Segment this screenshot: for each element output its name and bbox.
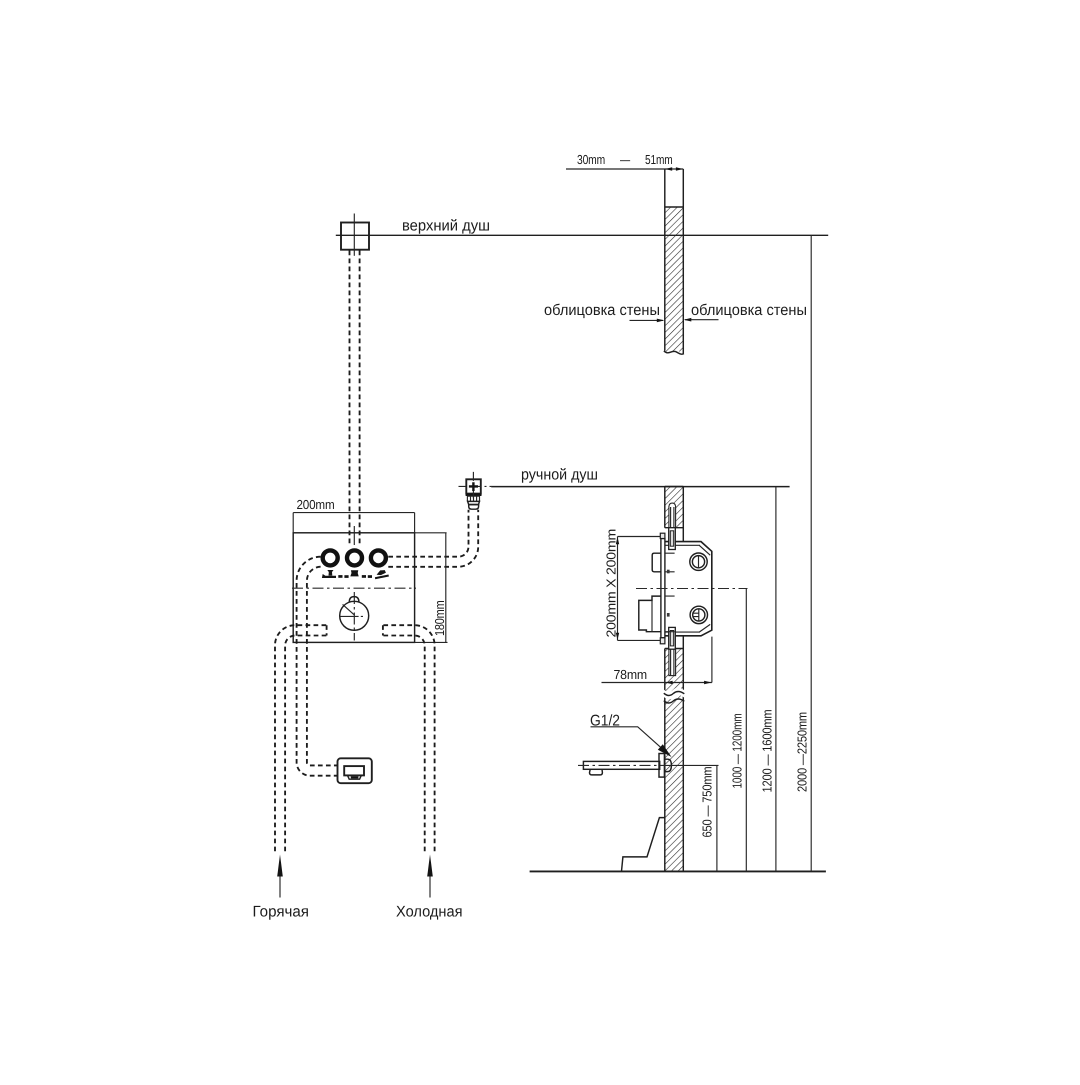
svg-text:1200 — 1600mm: 1200 — 1600mm	[760, 710, 775, 793]
svg-text:облицовка стены: облицовка стены	[691, 302, 807, 319]
svg-text:1000 — 1200mm: 1000 — 1200mm	[730, 714, 745, 789]
svg-text:—: —	[620, 152, 630, 167]
svg-text:51mm: 51mm	[645, 152, 673, 167]
svg-text:650 — 750mm: 650 — 750mm	[700, 767, 715, 838]
svg-text:облицовка стены: облицовка стены	[544, 302, 660, 319]
svg-text:200mm X 200mm: 200mm X 200mm	[604, 529, 619, 638]
svg-text:Холодная: Холодная	[396, 904, 463, 921]
svg-text:78mm: 78mm	[614, 667, 648, 682]
svg-text:ручной душ: ручной душ	[521, 467, 598, 484]
svg-text:верхний душ: верхний душ	[402, 218, 490, 235]
svg-text:30mm: 30mm	[577, 152, 605, 167]
svg-text:Горячая: Горячая	[253, 904, 310, 921]
svg-text:200mm: 200mm	[297, 497, 335, 512]
svg-text:2000 —2250mm: 2000 —2250mm	[795, 712, 810, 792]
svg-text:180mm: 180mm	[432, 601, 447, 637]
